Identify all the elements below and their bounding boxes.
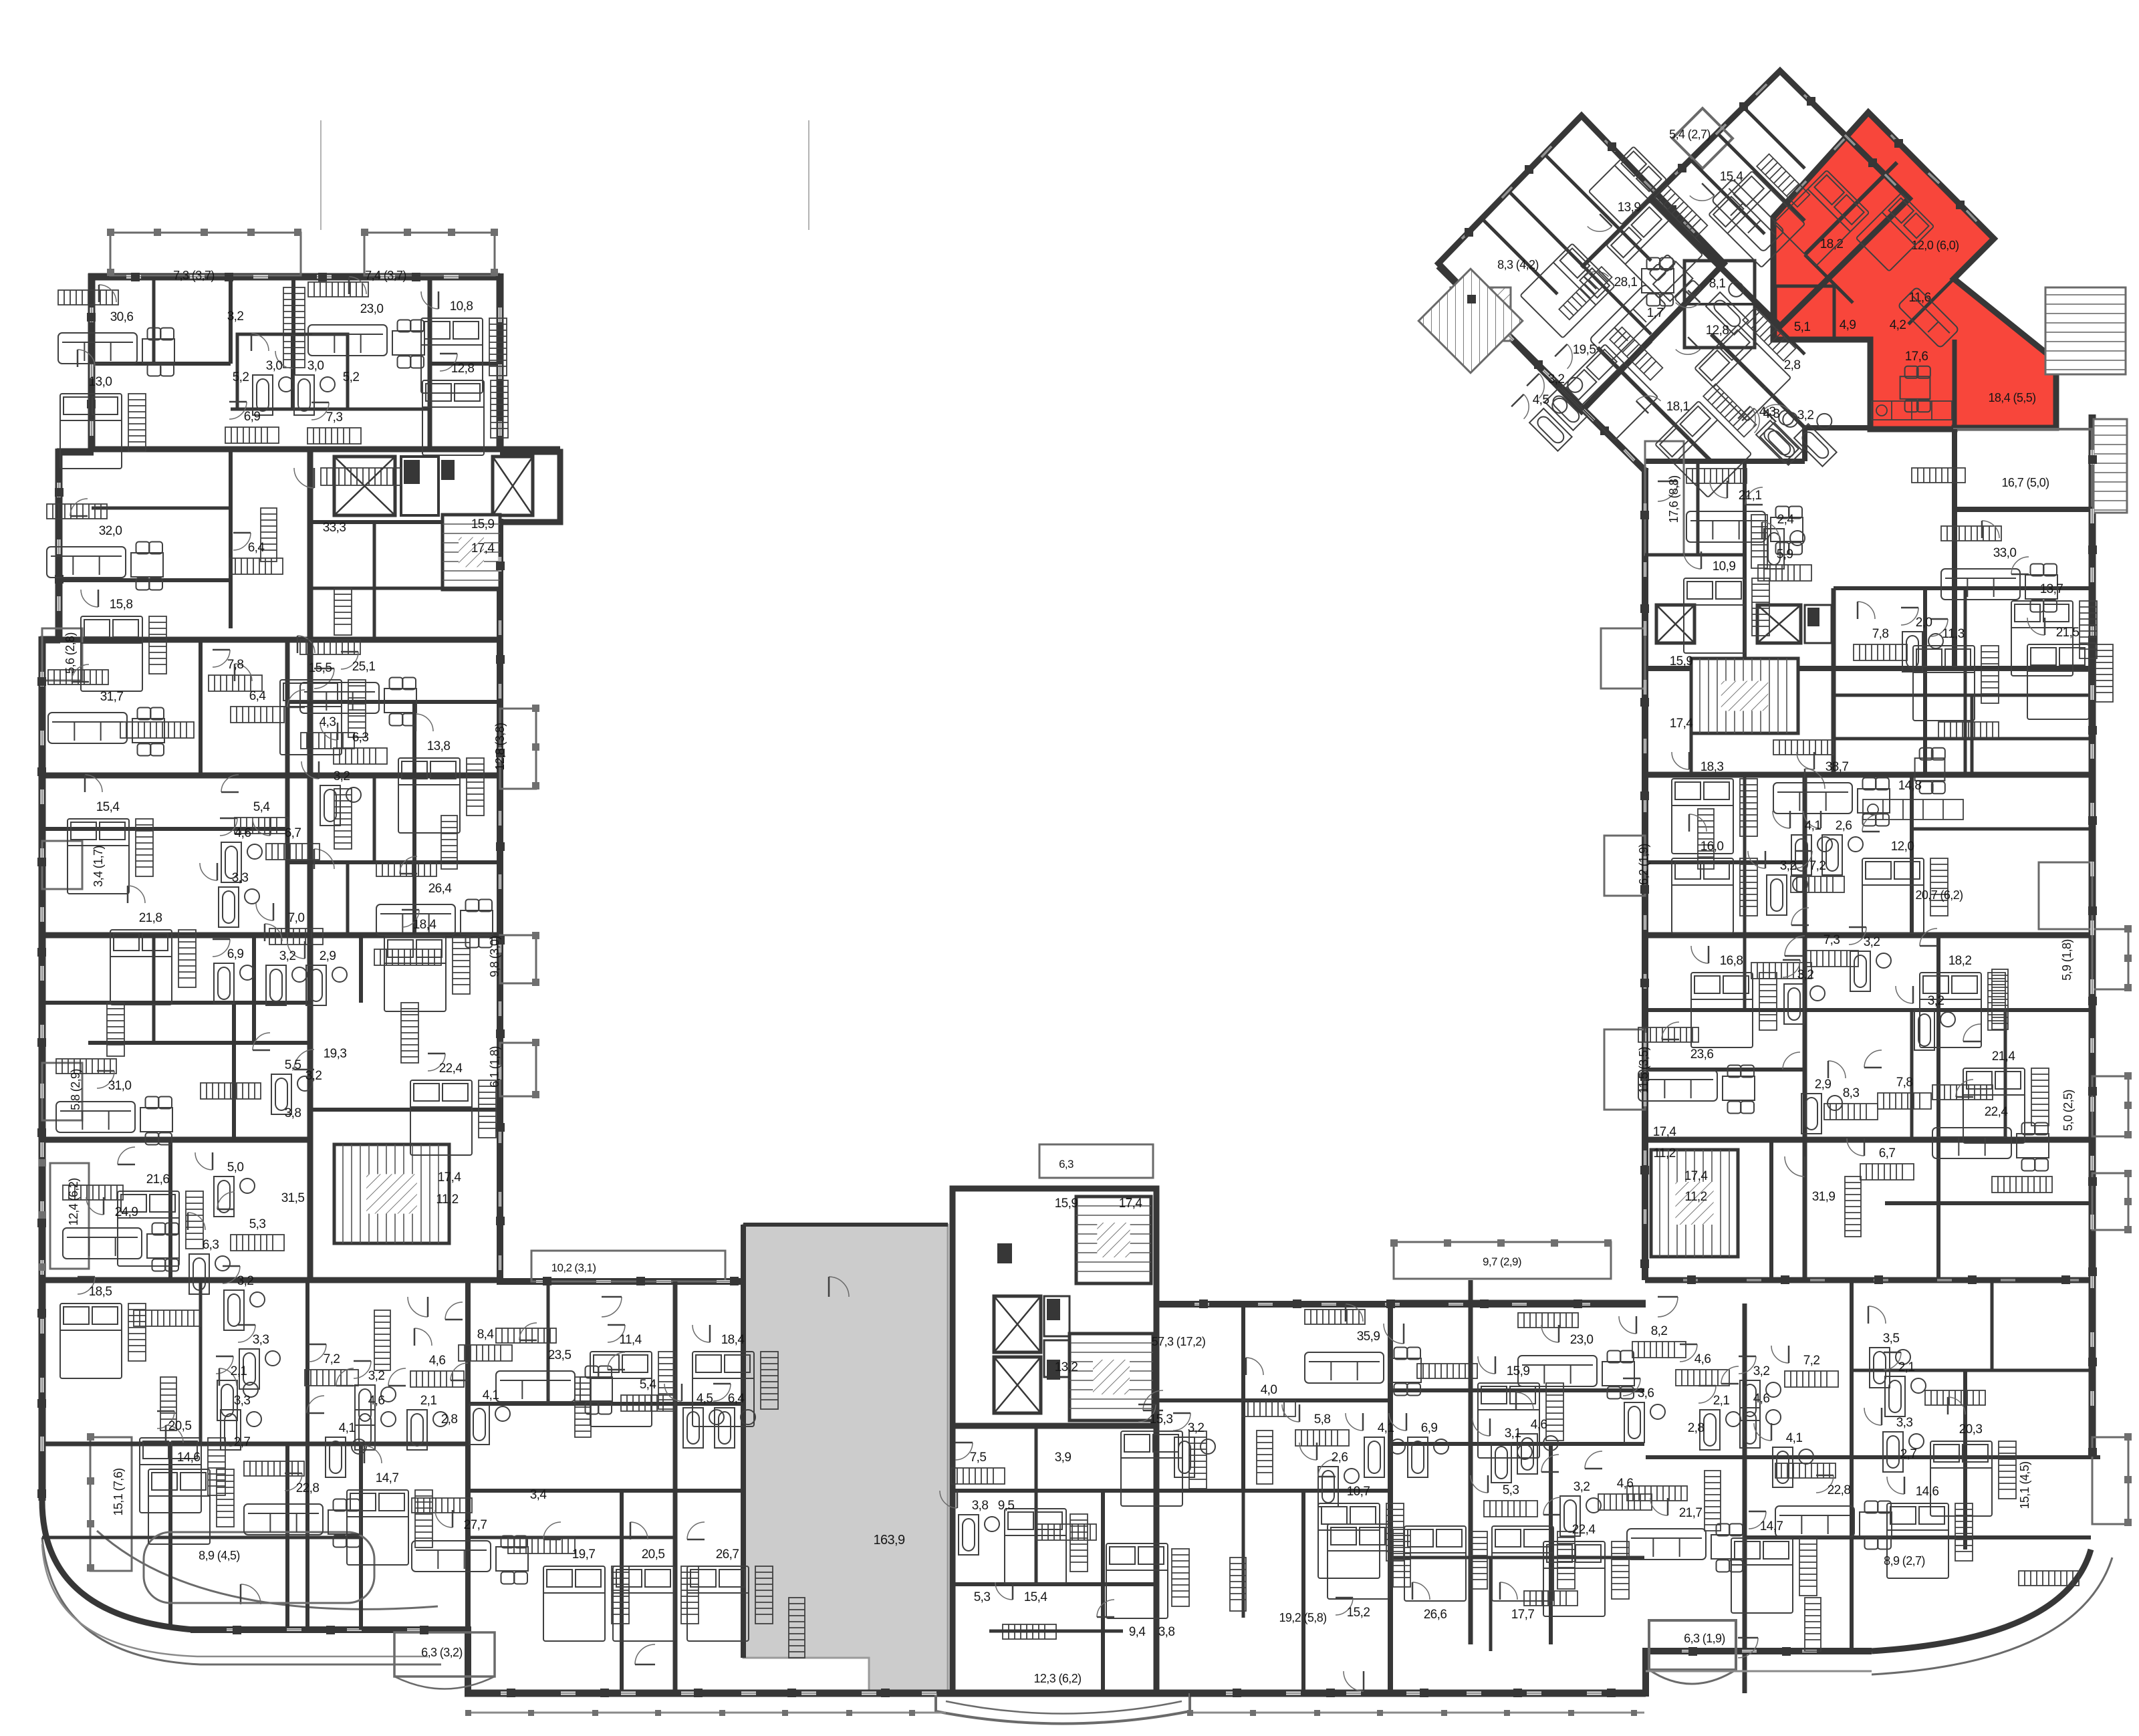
svg-text:4,6: 4,6 [429,1354,446,1368]
svg-text:7,5: 7,5 [970,1451,987,1465]
svg-text:5,8 (2,9): 5,8 (2,9) [69,1069,82,1110]
svg-text:2,8: 2,8 [441,1412,458,1427]
svg-text:17,6: 17,6 [1905,350,1928,364]
svg-text:1,7: 1,7 [1647,306,1664,320]
svg-text:8,3 (4,2): 8,3 (4,2) [1497,258,1539,271]
svg-text:3,2: 3,2 [279,949,296,963]
svg-text:4,9: 4,9 [1840,318,1856,332]
svg-text:2,9: 2,9 [1815,1078,1832,1092]
svg-text:21,4: 21,4 [1992,1049,2016,1064]
svg-text:2,1: 2,1 [1713,1394,1730,1408]
svg-text:12,0 (6,0): 12,0 (6,0) [1911,239,1959,252]
svg-text:6,2 (1,9): 6,2 (1,9) [1637,844,1650,885]
svg-text:2,0: 2,0 [1916,616,1932,630]
svg-text:3,8: 3,8 [972,1499,989,1513]
svg-text:12,8 (3,8): 12,8 (3,8) [493,723,507,770]
svg-text:13,9: 13,9 [1618,201,1641,215]
svg-text:2,8: 2,8 [1784,358,1801,372]
svg-text:23,0: 23,0 [360,302,384,316]
svg-text:6,4: 6,4 [249,689,267,703]
svg-text:5,9 (1,8): 5,9 (1,8) [2060,939,2073,981]
svg-text:3,2: 3,2 [1864,935,1880,949]
svg-text:12,8: 12,8 [451,362,475,376]
svg-text:15,9: 15,9 [1055,1197,1078,1211]
svg-text:20,7 (6,2): 20,7 (6,2) [1915,888,1963,902]
svg-text:17,4: 17,4 [1653,1125,1677,1139]
svg-text:6,7: 6,7 [1879,1146,1896,1160]
svg-text:15,8: 15,8 [110,598,133,612]
svg-text:15,9: 15,9 [1670,654,1693,668]
svg-text:17,4: 17,4 [1684,1169,1709,1183]
svg-text:26,7: 26,7 [716,1547,739,1562]
svg-text:4,6: 4,6 [1531,1418,1547,1432]
svg-text:24,9: 24,9 [115,1205,138,1219]
svg-text:4,6: 4,6 [368,1394,385,1408]
svg-text:6,9: 6,9 [244,410,261,424]
svg-text:15,4: 15,4 [1720,170,1744,184]
svg-text:19,3: 19,3 [324,1047,347,1061]
svg-text:12,4 (6,2): 12,4 (6,2) [67,1178,80,1225]
svg-text:30,6: 30,6 [110,310,134,324]
svg-text:14,7: 14,7 [376,1471,399,1485]
svg-text:21,5: 21,5 [2056,626,2080,640]
svg-text:15,9: 15,9 [471,517,495,531]
svg-text:3,2: 3,2 [237,1274,254,1288]
svg-text:3,2: 3,2 [227,309,244,324]
svg-text:23,0: 23,0 [1570,1333,1594,1347]
svg-text:4,3: 4,3 [1759,405,1776,419]
svg-text:7,8: 7,8 [1872,627,1889,641]
svg-text:12,8: 12,8 [1706,324,1729,338]
svg-text:6,4: 6,4 [248,541,265,555]
svg-text:19,7: 19,7 [572,1547,596,1562]
svg-text:26,6: 26,6 [1424,1608,1447,1622]
svg-text:3,4: 3,4 [530,1488,547,1502]
svg-text:6,9: 6,9 [1421,1421,1438,1435]
svg-text:3,8: 3,8 [1158,1625,1175,1639]
svg-text:10,8: 10,8 [450,299,473,314]
svg-text:16,7 (5,0): 16,7 (5,0) [2001,476,2049,489]
svg-text:18,2: 18,2 [1948,954,1972,968]
svg-text:13,7: 13,7 [2040,582,2063,596]
svg-text:7,3: 7,3 [326,410,343,424]
svg-text:3,2: 3,2 [334,769,350,783]
svg-text:3,0: 3,0 [307,359,324,373]
svg-text:19,5: 19,5 [1573,343,1596,357]
svg-text:31,9: 31,9 [1812,1190,1836,1204]
svg-text:4,6: 4,6 [1753,1392,1770,1406]
svg-text:12,3 (6,2): 12,3 (6,2) [1033,1672,1081,1685]
svg-text:26,4: 26,4 [428,882,453,896]
svg-text:6,3: 6,3 [352,731,369,745]
svg-text:27,7: 27,7 [464,1518,487,1532]
svg-text:13,2: 13,2 [1055,1360,1078,1374]
svg-text:25,1: 25,1 [352,660,376,674]
svg-text:17,6 (8,8): 17,6 (8,8) [1667,475,1680,523]
svg-text:11,5 (3,5): 11,5 (3,5) [1637,1047,1650,1094]
svg-text:4,1: 4,1 [1805,819,1821,833]
svg-text:4,5: 4,5 [1533,393,1549,407]
svg-text:3,2: 3,2 [1574,1480,1590,1494]
svg-text:7,0: 7,0 [288,911,305,925]
svg-text:8,3: 8,3 [1843,1086,1860,1100]
svg-text:18,2: 18,2 [1820,237,1844,251]
svg-text:5,2: 5,2 [343,370,360,384]
svg-text:3,5: 3,5 [1883,1332,1900,1346]
svg-text:22,4: 22,4 [1572,1523,1596,1537]
svg-text:20,5: 20,5 [642,1547,665,1562]
svg-text:6,3: 6,3 [203,1238,219,1252]
svg-text:14,8: 14,8 [1898,779,1922,793]
svg-text:5,6 (2,8): 5,6 (2,8) [64,632,77,674]
svg-text:5,8: 5,8 [1314,1412,1331,1427]
svg-text:3,3: 3,3 [234,1394,251,1408]
svg-text:14,7: 14,7 [1760,1519,1783,1533]
svg-text:2,9: 2,9 [320,949,336,963]
svg-text:2,6: 2,6 [1836,819,1852,833]
svg-text:2,1: 2,1 [1898,1360,1915,1374]
svg-text:21,6: 21,6 [146,1172,170,1187]
svg-text:5,9: 5,9 [1777,547,1793,562]
svg-text:5,0: 5,0 [227,1160,244,1174]
svg-text:5,2: 5,2 [233,370,249,384]
svg-text:18,4: 18,4 [413,918,437,932]
svg-text:15,5: 15,5 [309,661,332,675]
svg-text:2,1: 2,1 [420,1394,437,1408]
svg-text:16,8: 16,8 [1720,954,1743,968]
svg-text:6,3 (3,2): 6,3 (3,2) [421,1646,463,1659]
svg-text:22,4: 22,4 [1985,1105,2009,1119]
svg-text:5,0 (2,5): 5,0 (2,5) [2061,1090,2075,1131]
svg-text:23,5: 23,5 [548,1348,572,1362]
svg-text:21,7: 21,7 [1679,1506,1703,1520]
svg-text:33,0: 33,0 [1993,546,2017,560]
svg-text:18,3: 18,3 [1701,760,1724,774]
svg-text:3,2: 3,2 [1780,859,1797,873]
svg-text:16,0: 16,0 [1701,840,1724,854]
svg-text:22,4: 22,4 [439,1062,463,1076]
svg-text:17,4: 17,4 [471,541,495,555]
svg-text:3,2: 3,2 [368,1369,385,1383]
svg-text:5,5: 5,5 [285,1058,301,1072]
svg-text:2,8: 2,8 [1688,1421,1705,1435]
svg-text:9,4: 9,4 [1129,1625,1146,1639]
svg-text:11,2: 11,2 [1684,1190,1707,1204]
svg-text:3,2: 3,2 [1928,994,1944,1008]
svg-text:22,8: 22,8 [296,1481,320,1495]
svg-text:6,3: 6,3 [1059,1158,1074,1170]
svg-text:31,7: 31,7 [100,690,124,704]
svg-text:12,0: 12,0 [1891,840,1914,854]
svg-text:11,4: 11,4 [619,1333,642,1347]
svg-text:7,3 (3,7): 7,3 (3,7) [173,269,215,282]
svg-text:18,5: 18,5 [89,1285,112,1299]
svg-text:3,4 (1,7): 3,4 (1,7) [92,846,105,887]
svg-text:20,5: 20,5 [168,1419,192,1433]
svg-text:7,2: 7,2 [1803,1354,1820,1368]
svg-text:2,6: 2,6 [1332,1451,1348,1465]
svg-text:3,9: 3,9 [1055,1451,1072,1465]
svg-text:38,7: 38,7 [1826,760,1849,774]
svg-text:18,4 (5,5): 18,4 (5,5) [1988,391,2035,404]
svg-text:17,7: 17,7 [1511,1608,1535,1622]
svg-text:3,2: 3,2 [305,1069,322,1083]
svg-text:10,2 (3,1): 10,2 (3,1) [551,1261,596,1274]
svg-text:5,1: 5,1 [1794,320,1811,334]
svg-text:4,6: 4,6 [1617,1477,1634,1491]
svg-text:4,2: 4,2 [1890,318,1906,332]
svg-text:17,4: 17,4 [1119,1197,1143,1211]
svg-text:4,1: 4,1 [339,1421,356,1435]
svg-text:7,8: 7,8 [1896,1076,1913,1090]
svg-text:4,6: 4,6 [1694,1352,1711,1366]
svg-text:18,4: 18,4 [721,1333,745,1347]
svg-text:7,2: 7,2 [324,1352,340,1366]
svg-text:11,3: 11,3 [1942,627,1964,641]
svg-text:3,2: 3,2 [1797,968,1814,982]
svg-text:4,3: 4,3 [320,715,336,729]
svg-text:15,1 (7,6): 15,1 (7,6) [112,1468,125,1515]
svg-text:9,7 (2,9): 9,7 (2,9) [1483,1255,1521,1268]
svg-text:9,8 (3,0): 9,8 (3,0) [488,936,501,977]
svg-text:5,3: 5,3 [249,1217,266,1231]
svg-text:7,4 (3,7): 7,4 (3,7) [365,269,406,282]
svg-text:15,1 (4,5): 15,1 (4,5) [2018,1461,2031,1509]
svg-text:3,8: 3,8 [285,1106,301,1120]
svg-text:3,1: 3,1 [1505,1427,1521,1441]
svg-text:3,2: 3,2 [1548,372,1565,386]
svg-text:11,2: 11,2 [436,1193,458,1207]
svg-text:6,7: 6,7 [285,826,301,840]
svg-text:6,1 (1,8): 6,1 (1,8) [488,1046,501,1088]
svg-text:15,9: 15,9 [1507,1364,1530,1378]
svg-text:6,9: 6,9 [227,947,244,961]
svg-text:2,1: 2,1 [231,1364,247,1378]
svg-text:3,0: 3,0 [266,359,283,373]
svg-text:5,3: 5,3 [1503,1483,1519,1497]
svg-text:4,5: 4,5 [697,1392,713,1406]
svg-text:14,6: 14,6 [1916,1485,1939,1499]
svg-text:13,8: 13,8 [427,739,451,753]
svg-text:2,7: 2,7 [234,1435,251,1449]
svg-text:6,3 (1,9): 6,3 (1,9) [1684,1632,1725,1645]
svg-text:31,5: 31,5 [281,1191,305,1205]
svg-text:163,9: 163,9 [873,1533,905,1547]
svg-text:3,6: 3,6 [1638,1386,1654,1400]
svg-text:2,7: 2,7 [1900,1447,1917,1461]
svg-text:15,4: 15,4 [96,800,120,814]
svg-text:5,3: 5,3 [974,1590,991,1604]
svg-text:9,5: 9,5 [998,1499,1015,1513]
svg-text:23,6: 23,6 [1690,1047,1714,1062]
svg-text:15,4: 15,4 [1024,1590,1048,1604]
svg-text:4,6: 4,6 [235,826,251,840]
svg-text:22,8: 22,8 [1828,1483,1851,1497]
svg-text:28,1: 28,1 [1614,275,1638,289]
svg-text:3,2: 3,2 [1797,408,1814,422]
svg-text:10,9: 10,9 [1713,560,1736,574]
svg-text:5,4: 5,4 [640,1378,657,1392]
svg-text:11,2: 11,2 [1653,1146,1675,1160]
svg-text:4,1: 4,1 [483,1388,499,1402]
svg-text:3,3: 3,3 [232,871,249,885]
svg-text:15,2: 15,2 [1347,1606,1370,1620]
svg-text:5,4: 5,4 [253,800,271,814]
svg-text:14,6: 14,6 [177,1451,201,1465]
svg-text:4,1: 4,1 [1786,1431,1803,1445]
svg-text:7,2: 7,2 [1809,859,1826,873]
svg-text:6,4: 6,4 [728,1392,745,1406]
svg-text:18,1: 18,1 [1666,400,1690,414]
svg-text:33,3: 33,3 [323,521,346,535]
svg-text:15,3: 15,3 [1150,1412,1173,1427]
svg-text:8,4: 8,4 [477,1328,495,1342]
svg-text:21,1: 21,1 [1739,489,1762,503]
svg-text:19,2 (5,8): 19,2 (5,8) [1279,1611,1326,1624]
svg-text:3,2: 3,2 [1753,1364,1770,1378]
svg-text:21,8: 21,8 [139,911,162,925]
svg-text:5,4 (2,7): 5,4 (2,7) [1669,128,1711,141]
svg-text:7,3: 7,3 [1823,933,1840,947]
svg-text:10,7: 10,7 [1347,1485,1370,1499]
svg-text:8,9 (4,5): 8,9 (4,5) [199,1549,240,1562]
svg-text:2,4: 2,4 [1777,513,1795,527]
svg-text:13,0: 13,0 [89,375,112,389]
svg-text:17,4: 17,4 [1670,717,1694,731]
svg-text:4,0: 4,0 [1261,1383,1277,1397]
svg-text:31,0: 31,0 [108,1079,132,1093]
svg-text:4,1: 4,1 [1378,1421,1394,1435]
svg-text:35,9: 35,9 [1357,1330,1380,1344]
svg-text:3,3: 3,3 [1896,1416,1913,1430]
svg-text:57,3 (17,2): 57,3 (17,2) [1152,1335,1205,1348]
svg-text:17,4: 17,4 [438,1170,462,1185]
svg-text:8,1: 8,1 [1709,277,1726,291]
svg-text:20,3: 20,3 [1959,1422,1983,1437]
svg-text:3,2: 3,2 [1188,1421,1205,1435]
svg-text:3,3: 3,3 [253,1333,269,1347]
svg-text:32,0: 32,0 [99,524,122,538]
svg-text:7,8: 7,8 [227,658,244,672]
svg-text:8,2: 8,2 [1651,1324,1668,1338]
svg-text:8,9 (2,7): 8,9 (2,7) [1884,1554,1925,1568]
